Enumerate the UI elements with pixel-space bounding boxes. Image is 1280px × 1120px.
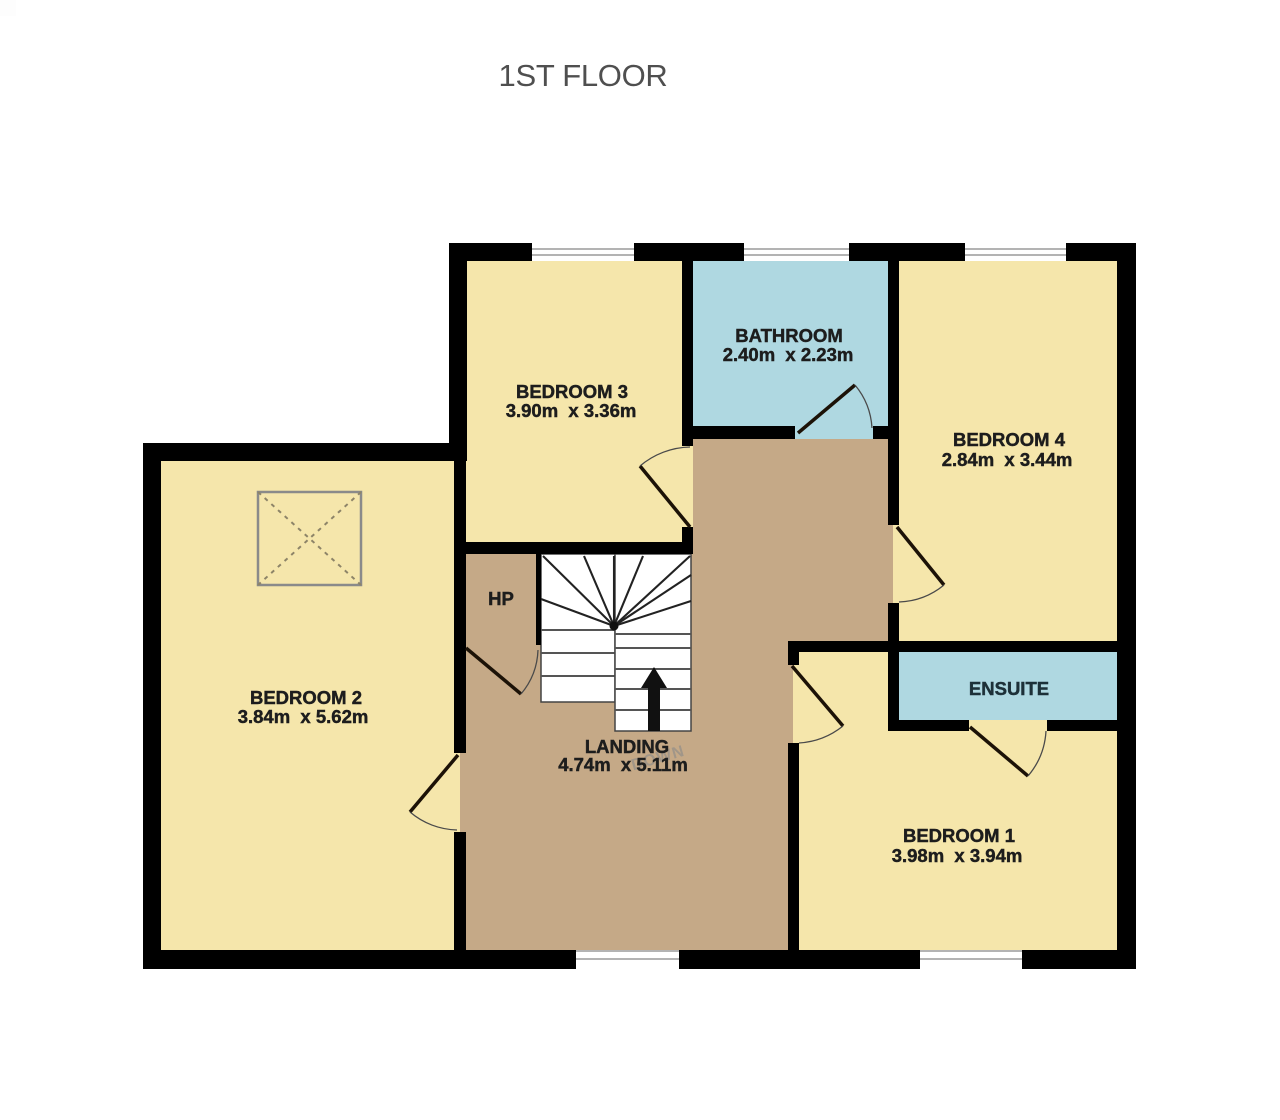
- svg-text:2.40m x 2.23m: 2.40m x 2.23m: [723, 344, 854, 365]
- svg-text:BATHROOM: BATHROOM: [735, 325, 843, 346]
- svg-text:3.98m x 3.94m: 3.98m x 3.94m: [892, 845, 1023, 866]
- svg-text:3.84m x 5.62m: 3.84m x 5.62m: [238, 706, 369, 727]
- svg-text:3.90m x 3.36m: 3.90m x 3.36m: [506, 400, 637, 421]
- svg-text:BEDROOM 2: BEDROOM 2: [250, 687, 362, 708]
- svg-text:ENSUITE: ENSUITE: [969, 678, 1049, 699]
- svg-text:4.74m x 5.11m: 4.74m x 5.11m: [558, 754, 688, 775]
- svg-text:BEDROOM 4: BEDROOM 4: [953, 429, 1066, 450]
- svg-text:2.84m x 3.44m: 2.84m x 3.44m: [942, 449, 1073, 470]
- svg-text:1ST FLOOR: 1ST FLOOR: [499, 58, 668, 93]
- svg-text:HP: HP: [488, 588, 514, 609]
- svg-text:BEDROOM 3: BEDROOM 3: [516, 381, 628, 402]
- svg-text:BEDROOM 1: BEDROOM 1: [903, 825, 1015, 846]
